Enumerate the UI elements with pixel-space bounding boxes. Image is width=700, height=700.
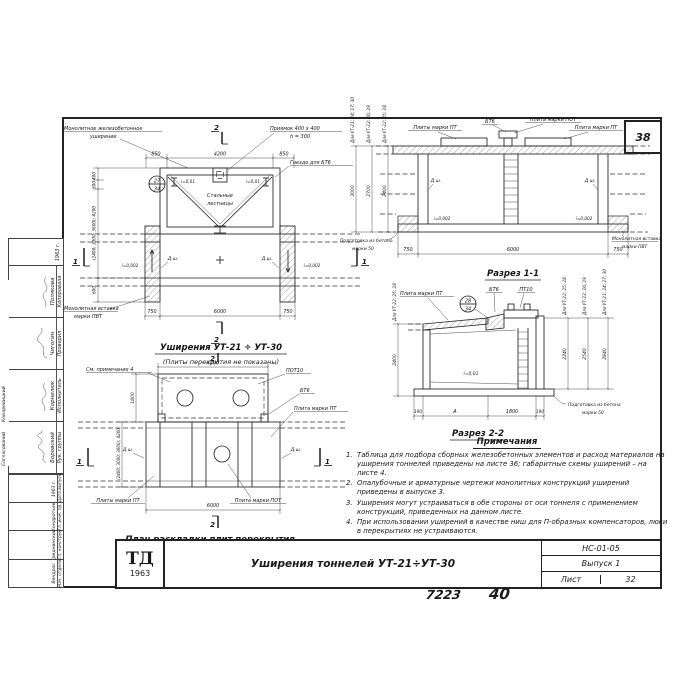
label-slope-top-left: i=0,01 bbox=[181, 179, 195, 184]
label-slope: i=0,01 bbox=[463, 371, 478, 377]
org-logo: ТД 1963 bbox=[117, 541, 165, 587]
chain-value-1: 3000 bbox=[350, 185, 356, 197]
chain-value-2: 2700 bbox=[366, 185, 372, 197]
label-pt-plates: Плиты марки ПТ bbox=[96, 498, 140, 504]
stamp-role: Копировала bbox=[56, 266, 63, 317]
label-dsh-left: Д.ш. bbox=[167, 256, 179, 262]
chain-left-value: 2400 bbox=[392, 354, 398, 366]
note-text: При использовании уширений в качестве ни… bbox=[357, 518, 668, 536]
note-number: 3. bbox=[346, 499, 357, 517]
sheet-number: 32 bbox=[601, 575, 660, 584]
drawing-title: Уширения тоннелей УТ-21÷УТ-30 bbox=[165, 541, 541, 587]
org-logo-year: 1963 bbox=[130, 569, 150, 578]
dims: 4200 1800 (2400; 3000; 3600); 4200 6000 bbox=[116, 361, 280, 515]
dim-400: 400 bbox=[92, 172, 97, 180]
stamp-year: 1963 г. bbox=[9, 239, 63, 265]
footer-numbers: 7223 40 bbox=[426, 585, 510, 603]
sheet-label: Лист bbox=[542, 575, 601, 584]
label-pt: Плита марки ПТ bbox=[575, 125, 618, 131]
mark-label: 2 bbox=[214, 124, 219, 132]
section-mark-2-bottom: 2 bbox=[211, 322, 222, 344]
notes-block: Примечания 1. Таблица для подбора сборны… bbox=[346, 429, 668, 537]
stamp-side-strip: Согласований Комаровицкий bbox=[0, 280, 9, 466]
dim-190-right: 190 bbox=[536, 409, 544, 414]
label-socket: Гнездо для БТ6 bbox=[290, 160, 331, 166]
label-bt6: БТ6 bbox=[300, 388, 310, 394]
note-text: Уширения могут устраиваться в обе сторон… bbox=[357, 499, 668, 517]
section-mark-2-bottom: 2 bbox=[210, 516, 218, 529]
label-stairs-2: лестницы bbox=[206, 201, 233, 207]
label-pt: Плита марки ПТ bbox=[400, 291, 443, 297]
note-text: Таблица для подбора сборных железобетонн… bbox=[357, 451, 668, 478]
dim-bottom: 750 6000 750 bbox=[398, 232, 628, 258]
label-pot: Плита марки ПОТ bbox=[235, 498, 282, 504]
chain-right-for-3: Для УТ-21; 24; 27; 30 bbox=[602, 269, 607, 316]
stamp-role: Гл. конструктор bbox=[57, 532, 63, 559]
widening-cover-plate bbox=[158, 374, 268, 422]
label-insert-2: марки ПВТ bbox=[622, 244, 649, 250]
stamp-role: Гл. инж. пр. bbox=[57, 503, 63, 530]
mark-label: 1 bbox=[77, 458, 82, 466]
chain-right-for-2: Для УТ-23; 26; 29 bbox=[582, 277, 587, 316]
dim-750-right: 750 bbox=[283, 309, 292, 315]
stamp-cell: Вендрос Нач. отдела bbox=[9, 559, 63, 587]
dim-chains-right: Для УТ-22; 25; 28 Для УТ-23; 26; 29 Для … bbox=[544, 269, 614, 389]
mark-label: 1 bbox=[325, 458, 330, 466]
dim-var: (2400; 3000; 3600); 4200 bbox=[116, 428, 121, 480]
dim-4200: 4200 bbox=[207, 361, 219, 367]
dim-750-left: 750 bbox=[147, 309, 156, 315]
note-number: 1. bbox=[346, 451, 357, 478]
chain-left-for: Для УТ-22; 25; 28 bbox=[392, 283, 397, 322]
panel-plan-widening: 2 2 1 1 850 4200 850 bbox=[60, 116, 382, 368]
dim-600: 600 bbox=[92, 286, 97, 294]
detail-number: 27 bbox=[154, 179, 161, 185]
dim-850-right: 850 bbox=[279, 152, 288, 158]
stamp-cell: Полякова Копировала bbox=[9, 265, 63, 317]
note-item: 1. Таблица для подбора сборных железобет… bbox=[346, 451, 668, 478]
detail-number: 28 bbox=[465, 299, 471, 305]
dim-190-left: 190 bbox=[414, 409, 422, 414]
title-block-right: НС-01-05 Выпуск 1 Лист 32 bbox=[541, 541, 660, 587]
label-slope-left: i=0,002 bbox=[434, 216, 451, 221]
stamp-signatures-top: Боровский Рук. группы Корнилюк Исполните… bbox=[8, 238, 62, 472]
issue-number: Выпуск 1 bbox=[542, 556, 660, 571]
dim-A: А bbox=[452, 409, 457, 415]
org-logo-text: ТД bbox=[126, 551, 154, 568]
note-number: 4. bbox=[346, 518, 357, 536]
label-slope-top-right: i=0,01 bbox=[246, 179, 260, 184]
stamp-cell: Корнилюк Исполнитель bbox=[9, 369, 63, 421]
stamp-signatures-bottom: Вендрос Нач. отдела Гриднинский Гл. конс… bbox=[8, 474, 62, 586]
label-pt: Плита марки ПТ bbox=[294, 406, 337, 412]
label-stairs-1: Стальные bbox=[207, 193, 233, 199]
signature-mark bbox=[36, 378, 50, 414]
detail-sheet: 34 bbox=[465, 307, 471, 313]
title-block: ТД 1963 Уширения тоннелей УТ-21÷УТ-30 НС… bbox=[115, 539, 662, 589]
notes-heading: Примечания bbox=[473, 437, 542, 449]
mark-label: 1 bbox=[73, 258, 78, 266]
note-item: 4. При использовании уширений в качестве… bbox=[346, 518, 668, 536]
doc-code: НС-01-05 bbox=[542, 541, 660, 556]
stamp-side-name: Комаровицкий bbox=[2, 386, 7, 422]
chain-right-value-2: 2540 bbox=[582, 348, 588, 360]
label-bt6: БТ6 bbox=[489, 287, 499, 293]
dim-1800: 1800 bbox=[506, 409, 518, 415]
dim-1800: 1800 bbox=[130, 392, 136, 404]
label-dsh-left: Д.ш. bbox=[430, 178, 442, 184]
dim-6000: 6000 bbox=[507, 247, 519, 253]
footer-page: 40 bbox=[488, 585, 511, 603]
stamp-cell: Кондратьев Гл. инж. пр. bbox=[9, 502, 63, 530]
label-bt6: БТ6 bbox=[485, 119, 495, 125]
signature-mark bbox=[36, 326, 50, 362]
dim-4200: 4200 bbox=[214, 152, 226, 158]
sheet-cell: Лист 32 bbox=[542, 572, 660, 587]
dim-chains-left: Для УТ-21; 24; 27; 30 Для УТ-23; 26; 29 … bbox=[350, 97, 398, 232]
dim-bottom: 750 6000 750 bbox=[145, 302, 295, 320]
section-mark-1-left: 1 bbox=[72, 248, 90, 266]
chain-right-for-1: Для УТ-22; 25; 28 bbox=[562, 277, 567, 316]
dim-var: (2400; 3000; 3600); 4200 bbox=[92, 206, 97, 260]
label-pot10: ПОТ10 bbox=[286, 368, 303, 374]
chain-right-value-3: 2840 bbox=[602, 348, 608, 360]
label-insert-2: марки ПВТ bbox=[74, 314, 103, 320]
section1-title: Разрез 1-1 bbox=[487, 269, 539, 279]
label-dsh-left: Д.ш. bbox=[122, 447, 134, 453]
label-prep-2: марки 50 bbox=[582, 410, 604, 416]
stamp-cell: Гриднинский Гл. конструктор bbox=[9, 531, 63, 559]
mark-label: 2 bbox=[210, 521, 215, 529]
label-pt10: ПТ10 bbox=[519, 287, 532, 293]
stamp-cell: Чигогин Проверил bbox=[9, 317, 63, 369]
section2-structure bbox=[408, 304, 554, 396]
chain-right-value-1: 2240 bbox=[562, 348, 568, 360]
panel-section-2-2: 28 34 Плита марки ПТ БТ6 ПТ10 i=0,01 Под… bbox=[378, 284, 665, 452]
dim-750-left: 750 bbox=[403, 247, 412, 253]
label-insert-1: Монолитная вставка bbox=[612, 236, 661, 242]
note-item: 2. Опалубочные и арматурные чертежи моно… bbox=[346, 479, 668, 497]
section-structure bbox=[378, 154, 648, 232]
stamp-cell: Боровский Рук. группы bbox=[9, 421, 63, 473]
signature-mark bbox=[36, 430, 50, 466]
detail-callout-28-34: 28 34 bbox=[460, 296, 488, 318]
label-slope-right: i=0,002 bbox=[304, 263, 321, 268]
signature-mark bbox=[36, 274, 50, 310]
drawing-sheet: { "sheet": { "corner_number": "38", "foo… bbox=[0, 0, 700, 700]
dim-300: 300 bbox=[92, 181, 97, 189]
roof-slab bbox=[376, 131, 650, 154]
section-mark-1-left: 1 bbox=[76, 448, 94, 466]
section-mark-2-top: 2 bbox=[211, 124, 228, 144]
note-number: 2. bbox=[346, 479, 357, 497]
section-mark-1-right: 1 bbox=[314, 448, 332, 466]
note-text: Опалубочные и арматурные чертежи монолит… bbox=[357, 479, 668, 497]
panel-slab-layout-plan: 2 2 1 1 42 bbox=[58, 352, 350, 550]
detail-sheet: 34 bbox=[154, 187, 160, 193]
chain-value-3: 2400 bbox=[382, 185, 388, 197]
dim-chain-left: Для УТ-22; 25; 28 2400 bbox=[392, 283, 422, 396]
label-pit-2: h = 300 bbox=[290, 134, 310, 140]
label-prep-1: Подготовка из бетона bbox=[340, 238, 393, 244]
panel-section-1-1: Для УТ-21; 24; 27; 30 Для УТ-23; 26; 29 … bbox=[338, 116, 665, 288]
detail-callout-27-34: 27 34 bbox=[149, 176, 165, 193]
label-monolith-1: Монолитное железобетонное bbox=[64, 126, 142, 132]
stamp-role: Дата выпуска bbox=[57, 475, 63, 502]
stamp-side-role: Согласований bbox=[2, 432, 7, 466]
chain-for-1: Для УТ-21; 24; 27; 30 bbox=[350, 97, 355, 144]
label-dsh-right: Д.ш. bbox=[290, 447, 302, 453]
footer-code: 7223 bbox=[425, 587, 462, 602]
layout-labels: См. примечание 4 ПОТ10 БТ6 Плита марки П… bbox=[86, 367, 348, 504]
label-prep-1: Подготовка из бетона bbox=[568, 402, 621, 408]
label-monolith-2: уширение bbox=[89, 134, 117, 140]
label-slope-left: i=0,002 bbox=[122, 263, 139, 268]
dim-6000: 6000 bbox=[214, 309, 226, 315]
stamp-role: Исполнитель bbox=[56, 370, 63, 421]
label-dsh-right: Д.ш. bbox=[584, 178, 596, 184]
note-item: 3. Уширения могут устраиваться в обе сто… bbox=[346, 499, 668, 517]
stamp-role: Рук. группы bbox=[56, 422, 63, 473]
stamp-role: Нач. отдела bbox=[57, 560, 63, 587]
label-prep-2: марки 50 bbox=[352, 246, 374, 252]
dim-6000: 6000 bbox=[207, 503, 219, 509]
stamp-role: Проверил bbox=[56, 318, 63, 369]
chain-for-3: Для УТ-22; 25; 28 bbox=[382, 105, 387, 144]
chain-for-2: Для УТ-23; 26; 29 bbox=[366, 105, 371, 144]
label-pit-1: Приямок 400 x 400 bbox=[270, 126, 320, 132]
notes-heading-wrap: Примечания bbox=[346, 429, 668, 448]
label-pt-plates: Плиты марки ПТ bbox=[413, 125, 457, 131]
label-note4: См. примечание 4 bbox=[86, 367, 133, 373]
stamp-cell: 1963 г. Дата выпуска bbox=[9, 475, 63, 502]
label-dsh-right: Д.ш. bbox=[261, 256, 273, 262]
plan-labels: Монолитное железобетонное уширение Приям… bbox=[64, 126, 353, 320]
label-slope-right: i=0,002 bbox=[576, 216, 593, 221]
dim-bottom: 190 А 1800 190 bbox=[414, 396, 544, 420]
label-pot: Плита марки ПОТ bbox=[530, 117, 577, 123]
